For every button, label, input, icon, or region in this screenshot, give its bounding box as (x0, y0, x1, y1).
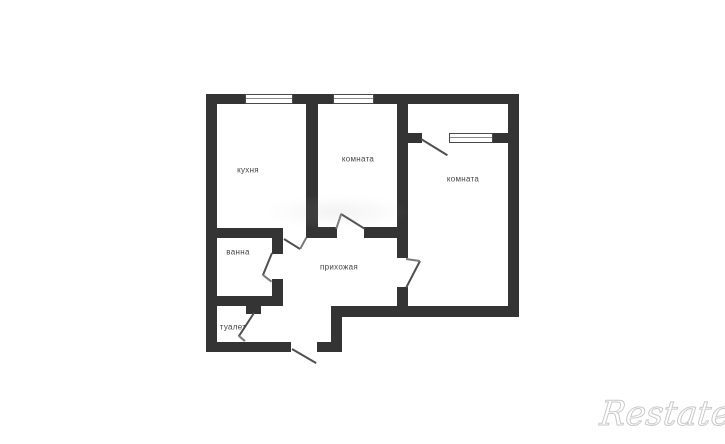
floorplan: кухня комната комната ванна туалет прихо… (0, 0, 725, 444)
door-closet-leaf (420, 138, 447, 156)
wall-bath-bottom (206, 296, 283, 306)
brand-watermark: Restate (597, 392, 725, 440)
floorplan-image: кухня комната комната ванна туалет прихо… (0, 0, 725, 444)
scan-artifact (268, 196, 408, 228)
door-entrance-leaf (291, 348, 316, 364)
door-toilet-arc (239, 335, 246, 341)
wall-outer-bottom-right (331, 306, 519, 317)
door-kitchen-arc (299, 237, 306, 249)
wall-outer-right (508, 94, 519, 317)
wall-outer-left (206, 94, 217, 352)
wall-outer-bottom-left (206, 342, 291, 352)
room-label-room-center: комната (342, 155, 374, 164)
door-room-right-leaf (405, 261, 421, 289)
room-label-kitchen: кухня (237, 166, 259, 175)
room-label-toilet: туалет (220, 323, 246, 332)
window-kitchen (245, 94, 293, 104)
door-room-right-arc (406, 258, 420, 261)
window-room-right (449, 133, 493, 143)
window-room-center (333, 94, 374, 104)
wall-bath-right-top (272, 228, 283, 254)
room-label-room-right: комната (447, 175, 479, 184)
door-bathroom-leaf (262, 253, 273, 276)
room-label-bathroom: ванна (226, 248, 249, 257)
room-label-hallway: прихожая (320, 263, 358, 272)
wall-outer-bottom-left2 (317, 342, 342, 352)
wall-midroom-bottom-left (317, 227, 337, 238)
wall-midroom-bottom-right (364, 227, 398, 238)
wall-rightroom-top-left (408, 133, 422, 143)
wall-hall-room-divider-bot (397, 287, 408, 307)
wall-hall-room-divider-top (397, 94, 408, 258)
door-bathroom-arc (263, 274, 273, 282)
